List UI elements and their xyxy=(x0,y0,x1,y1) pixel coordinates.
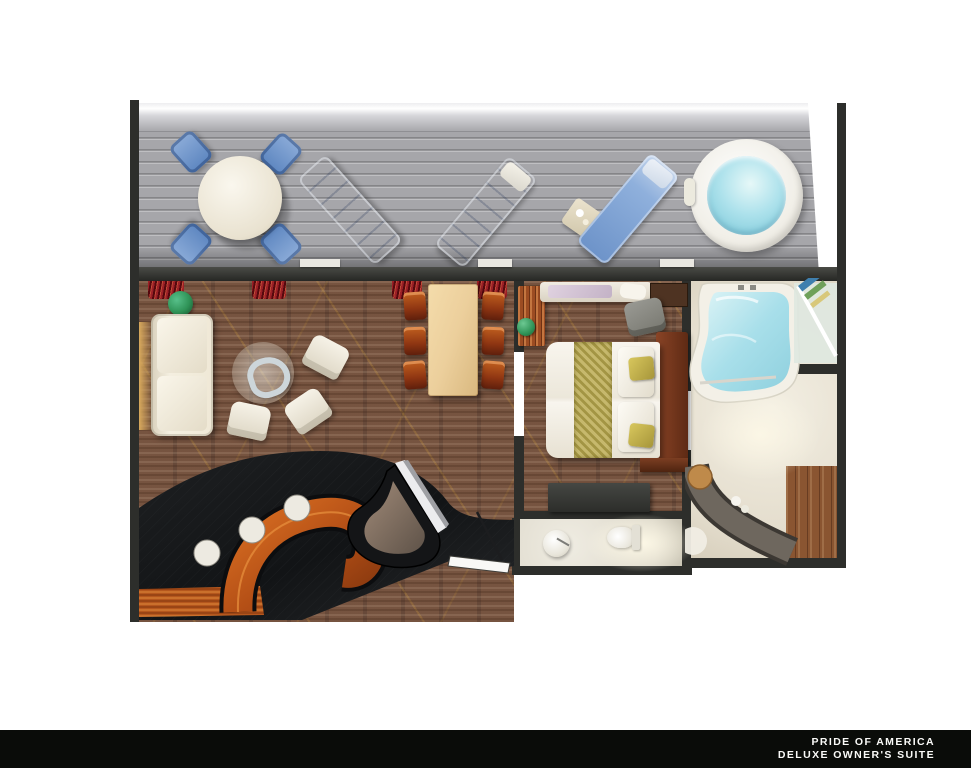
floor-plan-page: PRIDE OF AMERICA DELUXE OWNER'S SUITE xyxy=(0,0,971,768)
ship-name: PRIDE OF AMERICA xyxy=(778,736,935,749)
bench-cushion xyxy=(548,285,612,298)
tub-faucet xyxy=(750,285,756,290)
tub-faucet xyxy=(738,285,744,290)
dining-chair xyxy=(403,291,427,320)
shower-enclosure xyxy=(794,283,837,363)
dining-chair xyxy=(404,327,427,356)
hot-tub-water xyxy=(707,156,786,235)
curtain xyxy=(252,281,286,299)
balcony-railing xyxy=(139,103,837,132)
lounge-area xyxy=(130,430,550,630)
door-sill xyxy=(300,259,340,267)
bathroom-light xyxy=(700,390,820,480)
sofa xyxy=(151,314,213,436)
bed-footboard-wood xyxy=(640,458,688,472)
bed-pillow-gold xyxy=(628,356,655,381)
small-plant xyxy=(517,318,535,336)
sofa-cushion xyxy=(157,318,207,373)
table-item xyxy=(574,208,585,219)
caption-text: PRIDE OF AMERICA DELUXE OWNER'S SUITE xyxy=(778,736,935,762)
vanity-cup xyxy=(731,496,741,506)
bathtub-water xyxy=(701,292,790,392)
tv-dresser xyxy=(548,483,650,512)
potted-plant xyxy=(168,291,193,316)
window-bench xyxy=(540,282,652,302)
hot-tub-step xyxy=(684,178,695,206)
bed-headboard xyxy=(656,332,688,466)
toilet-tank xyxy=(632,525,640,550)
toilet-bowl xyxy=(607,527,634,548)
dining-chair xyxy=(403,360,427,390)
dining-chair xyxy=(481,360,505,390)
bar-stool xyxy=(194,540,220,566)
folded-towels xyxy=(619,282,647,300)
vanity-cup xyxy=(741,505,749,513)
door-sill xyxy=(478,259,512,267)
bed-runner xyxy=(574,342,612,458)
wc-light xyxy=(586,514,696,572)
balcony-round-table xyxy=(198,156,282,240)
dining-table xyxy=(428,284,478,396)
dining-chair xyxy=(482,327,505,356)
bar-stool xyxy=(284,495,310,521)
bar-stool xyxy=(239,517,265,543)
dining-chair xyxy=(481,291,505,320)
suite-name: DELUXE OWNER'S SUITE xyxy=(778,749,935,762)
sofa-cushion xyxy=(157,376,207,431)
bath-hamper xyxy=(685,527,707,555)
caption-bar: PRIDE OF AMERICA DELUXE OWNER'S SUITE xyxy=(0,730,971,768)
bed-pillow-gold xyxy=(628,423,655,448)
door-sill xyxy=(660,259,694,267)
